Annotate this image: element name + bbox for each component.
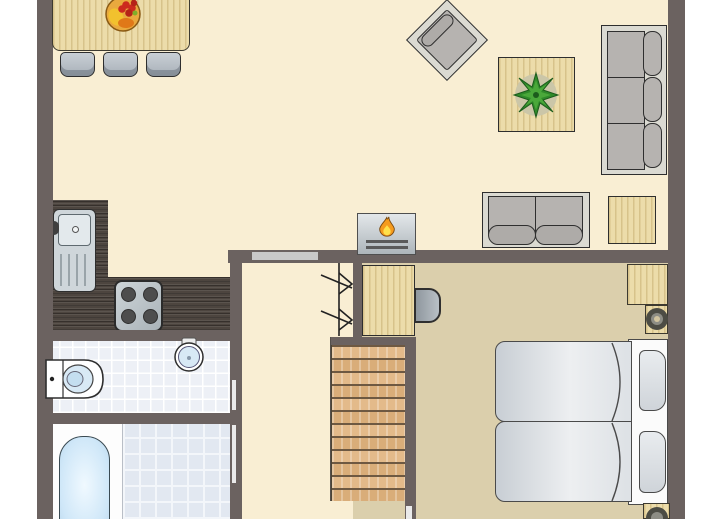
floor-plan <box>0 0 713 519</box>
fireplace <box>357 213 416 255</box>
sofa <box>601 25 667 175</box>
bedroom-corner-cabinet <box>627 264 668 305</box>
sink-drainer-ridges <box>60 254 90 286</box>
plant-icon <box>512 71 560 119</box>
side-table <box>608 196 656 244</box>
door-living-to-hall <box>252 252 318 260</box>
toilet <box>44 357 106 401</box>
bedside-lamp-ring <box>651 512 663 519</box>
bathtub <box>59 436 110 519</box>
door-bedroom <box>406 506 412 519</box>
stair-tread <box>332 384 405 397</box>
stair-tread <box>332 371 405 384</box>
loveseat-seat-cushion <box>535 225 583 245</box>
fruit-bowl-icon <box>104 0 142 35</box>
stove-burner <box>143 309 158 324</box>
door-toilet-room <box>232 380 236 410</box>
sofa-seat-cushion <box>607 77 645 124</box>
desk-chair <box>414 288 441 323</box>
stair-tread <box>332 423 405 436</box>
pillow <box>639 350 666 411</box>
stove-burner <box>121 287 136 302</box>
loveseat-seat-cushion <box>488 225 536 245</box>
wall-basin <box>171 337 207 373</box>
stove <box>114 280 163 332</box>
loveseat <box>482 192 590 248</box>
stair-tread <box>332 488 405 501</box>
pillow <box>639 431 666 493</box>
stair-tread <box>332 449 405 462</box>
wall-stairs-right <box>405 337 416 519</box>
bathroom-floor <box>122 424 230 519</box>
flame-icon <box>377 216 397 238</box>
sofa-back-cushion <box>643 77 662 122</box>
stair-tread <box>332 345 405 358</box>
sink-drain <box>72 226 79 233</box>
sofa-back-cushion <box>643 123 662 168</box>
dining-chair <box>60 52 95 77</box>
desk <box>362 265 415 336</box>
stair-tread <box>332 436 405 449</box>
fireplace-vent-line <box>366 246 408 249</box>
door-bathroom <box>232 425 236 483</box>
stair-tread <box>332 462 405 475</box>
bed-fold-lines <box>600 340 640 504</box>
fireplace-vent-line <box>366 240 408 243</box>
wall-outer-right <box>668 0 685 519</box>
stair-tread <box>332 475 405 488</box>
wall-outer-left <box>37 0 53 519</box>
stair-tread <box>332 410 405 423</box>
stair-direction-marks <box>313 258 361 342</box>
stair-tread <box>332 397 405 410</box>
sofa-seat-cushion <box>607 123 645 170</box>
wall-bathroom-divider <box>37 413 230 424</box>
sofa-back-cushion <box>643 31 662 76</box>
staircase <box>331 345 405 501</box>
stair-tread <box>332 358 405 371</box>
dining-chair <box>103 52 138 77</box>
stove-burner <box>121 309 136 324</box>
dining-chair <box>146 52 181 77</box>
bedside-lamp-center <box>654 316 660 322</box>
sofa-seat-cushion <box>607 31 645 78</box>
stove-burner <box>143 287 158 302</box>
